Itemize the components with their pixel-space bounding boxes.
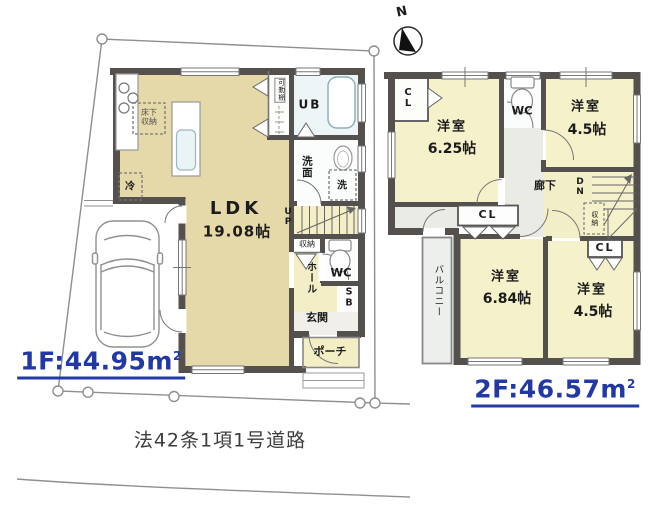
- label-stairs-up: UP: [283, 207, 293, 227]
- label-stair-storage: 収納: [590, 211, 598, 227]
- label-corridor: 廊下: [534, 180, 556, 192]
- label-fridge: 冷: [125, 181, 135, 192]
- road-label: 法42条1項1号道路: [134, 430, 306, 451]
- label-washer: 洗: [337, 180, 347, 191]
- label-room-ne-size: 4.5帖: [568, 123, 607, 139]
- label-stairs-down: DN: [575, 177, 585, 197]
- label-room-se-size: 4.5帖: [574, 305, 613, 321]
- floor2-area-label: 2F:46.57m2: [471, 375, 639, 408]
- label-wc-1f: WC: [330, 267, 351, 280]
- label-movable-shelf: 可動棚: [274, 78, 285, 103]
- floorplan-page: N 床下 収納 冷 可動棚 UB 洗面 洗 LDK 19.08帖 UP 収納 W…: [0, 0, 650, 513]
- label-closet-se: CL: [595, 242, 614, 254]
- label-closet-1f: 収納: [299, 241, 315, 250]
- label-room-se: 洋室: [577, 284, 607, 299]
- label-closet-nw: CL: [402, 87, 414, 109]
- bathtub: [328, 77, 355, 128]
- toilet-tank-1f: [329, 240, 351, 251]
- label-ldk-size: 19.08帖: [203, 224, 271, 241]
- compass-needle: [399, 28, 416, 52]
- label-room-nw: 洋室: [437, 121, 467, 136]
- label-room-sw: 洋室: [491, 271, 521, 286]
- floorplan-drawing: [0, 0, 650, 513]
- label-balcony: バルコニー: [432, 265, 443, 318]
- label-wc-2f: WC: [511, 105, 532, 118]
- label-shoe-box: SB: [344, 287, 355, 308]
- label-hall: ホール: [304, 262, 315, 295]
- compass-icon: [394, 27, 422, 55]
- toilet-tank-2f: [511, 77, 534, 88]
- label-room-sw-size: 6.84帖: [483, 292, 532, 308]
- sink-basin: [334, 146, 352, 170]
- label-ldk: LDK: [210, 199, 262, 219]
- car-icon: [93, 221, 163, 347]
- kitchen-sink: [177, 130, 196, 170]
- road-line: [17, 479, 410, 497]
- label-underfloor-storage: 床下 収納: [141, 109, 157, 127]
- label-entrance: 玄関: [306, 312, 328, 324]
- label-room-ne: 洋室: [571, 101, 601, 116]
- floor1-area-label: 1F:44.95m2: [17, 347, 185, 380]
- label-unit-bath: UB: [299, 98, 322, 111]
- label-porch: ポーチ: [314, 346, 347, 358]
- label-washroom: 洗面: [300, 156, 312, 179]
- label-room-nw-size: 6.25帖: [428, 142, 477, 158]
- label-closet-mid: CL: [478, 209, 497, 221]
